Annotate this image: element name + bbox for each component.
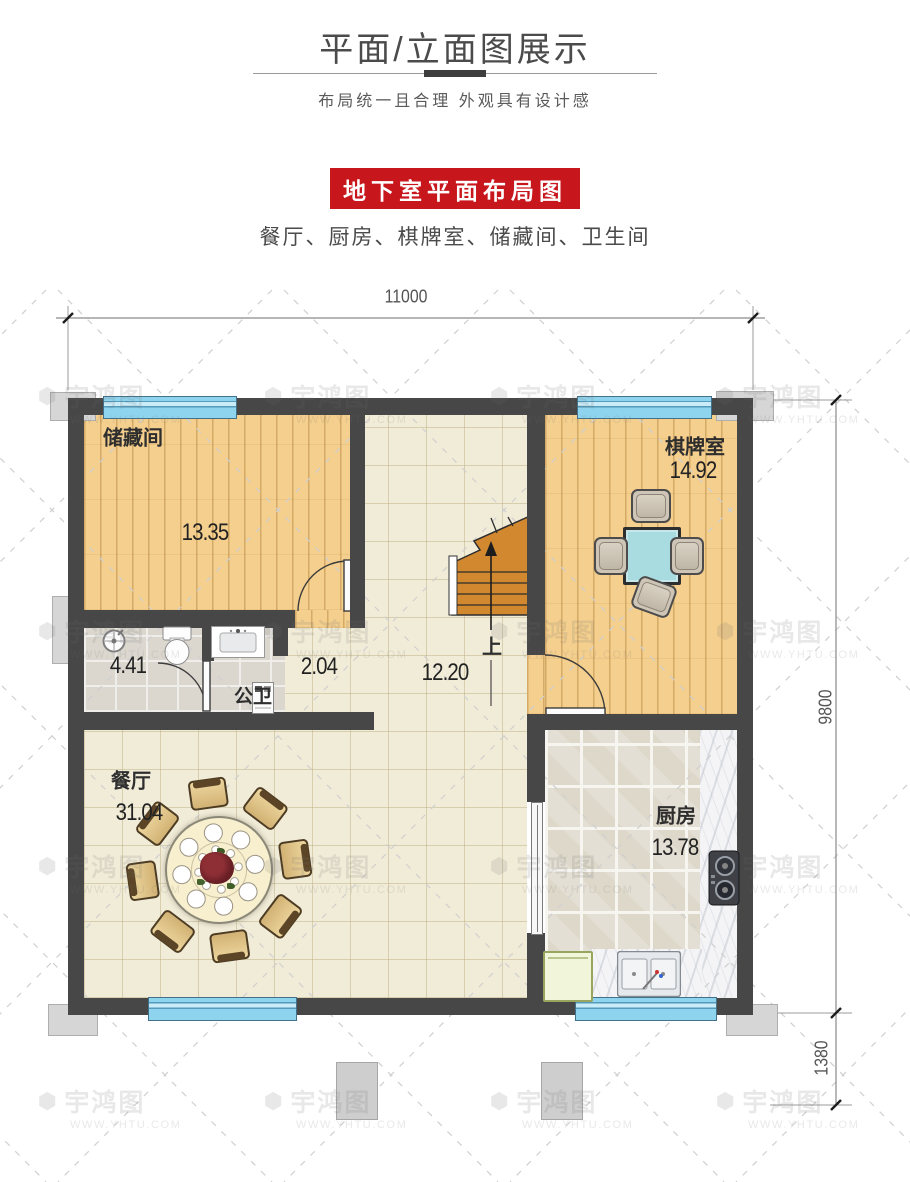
wall-exterior-right	[737, 398, 753, 1015]
dining-area-value: 31.04	[116, 799, 163, 827]
storage-door-arc	[298, 561, 348, 611]
wall-storage-right	[350, 415, 365, 628]
window-top-storage	[103, 396, 237, 419]
storage-room-label: 储藏间	[103, 422, 163, 451]
dining-chair	[125, 860, 160, 902]
dimension-extension-lines	[68, 306, 852, 1105]
bath-room-label: 公卫	[234, 682, 272, 709]
dining-chair	[209, 929, 251, 964]
dimension-porch-value: 1380	[812, 1040, 833, 1075]
chess-room-label: 棋牌室	[665, 431, 725, 460]
toilet	[160, 626, 194, 671]
dimension-right-value: 9800	[816, 689, 837, 724]
mahjong-chair-left	[594, 537, 628, 575]
shower-area-value: 4.41	[110, 652, 146, 680]
porch-pillar-left	[336, 1062, 378, 1120]
bath-door-leaf	[203, 661, 210, 711]
dining-room-label: 餐厅	[111, 765, 151, 794]
kitchen-area-value: 13.78	[652, 834, 699, 862]
wall-kitchen-left-upper	[527, 730, 545, 802]
table-centerpiece	[200, 852, 234, 884]
dining-chair	[187, 776, 229, 811]
stairs-up-label: 上	[482, 631, 502, 660]
wall-bath-bottom	[84, 712, 374, 730]
cup	[216, 884, 226, 894]
kitchen-sliding-door	[531, 802, 543, 935]
storage-area-value: 13.35	[182, 519, 229, 547]
cup	[233, 861, 243, 871]
bath-sink	[211, 626, 265, 663]
kitchen-room-label: 厨房	[656, 800, 696, 829]
mahjong-chair-top	[631, 489, 671, 523]
window-top-chess	[577, 396, 712, 419]
refrigerator	[543, 951, 593, 1002]
passage-area-value: 2.04	[301, 653, 337, 681]
wall-passage-stub	[273, 628, 288, 656]
dining-chair	[278, 838, 313, 880]
porch-pillar-right	[541, 1062, 583, 1120]
hall-area-value: 12.20	[422, 659, 469, 687]
chess-door-arc	[545, 655, 605, 715]
wall-exterior-left	[68, 398, 84, 1015]
wall-chess-kitchen-divider	[527, 714, 753, 730]
page: 平面/立面图展示 布局统一且合理 外观具有设计感 地下室平面布局图 餐厅、厨房、…	[0, 0, 910, 1182]
chess-area-value: 14.92	[670, 457, 717, 485]
kitchen-sink	[617, 951, 681, 1002]
mahjong-chair-right	[670, 537, 704, 575]
stove	[708, 850, 740, 911]
window-bottom-dining	[148, 997, 297, 1021]
wall-hall-right	[527, 415, 545, 655]
dimension-top-value: 11000	[385, 287, 428, 308]
